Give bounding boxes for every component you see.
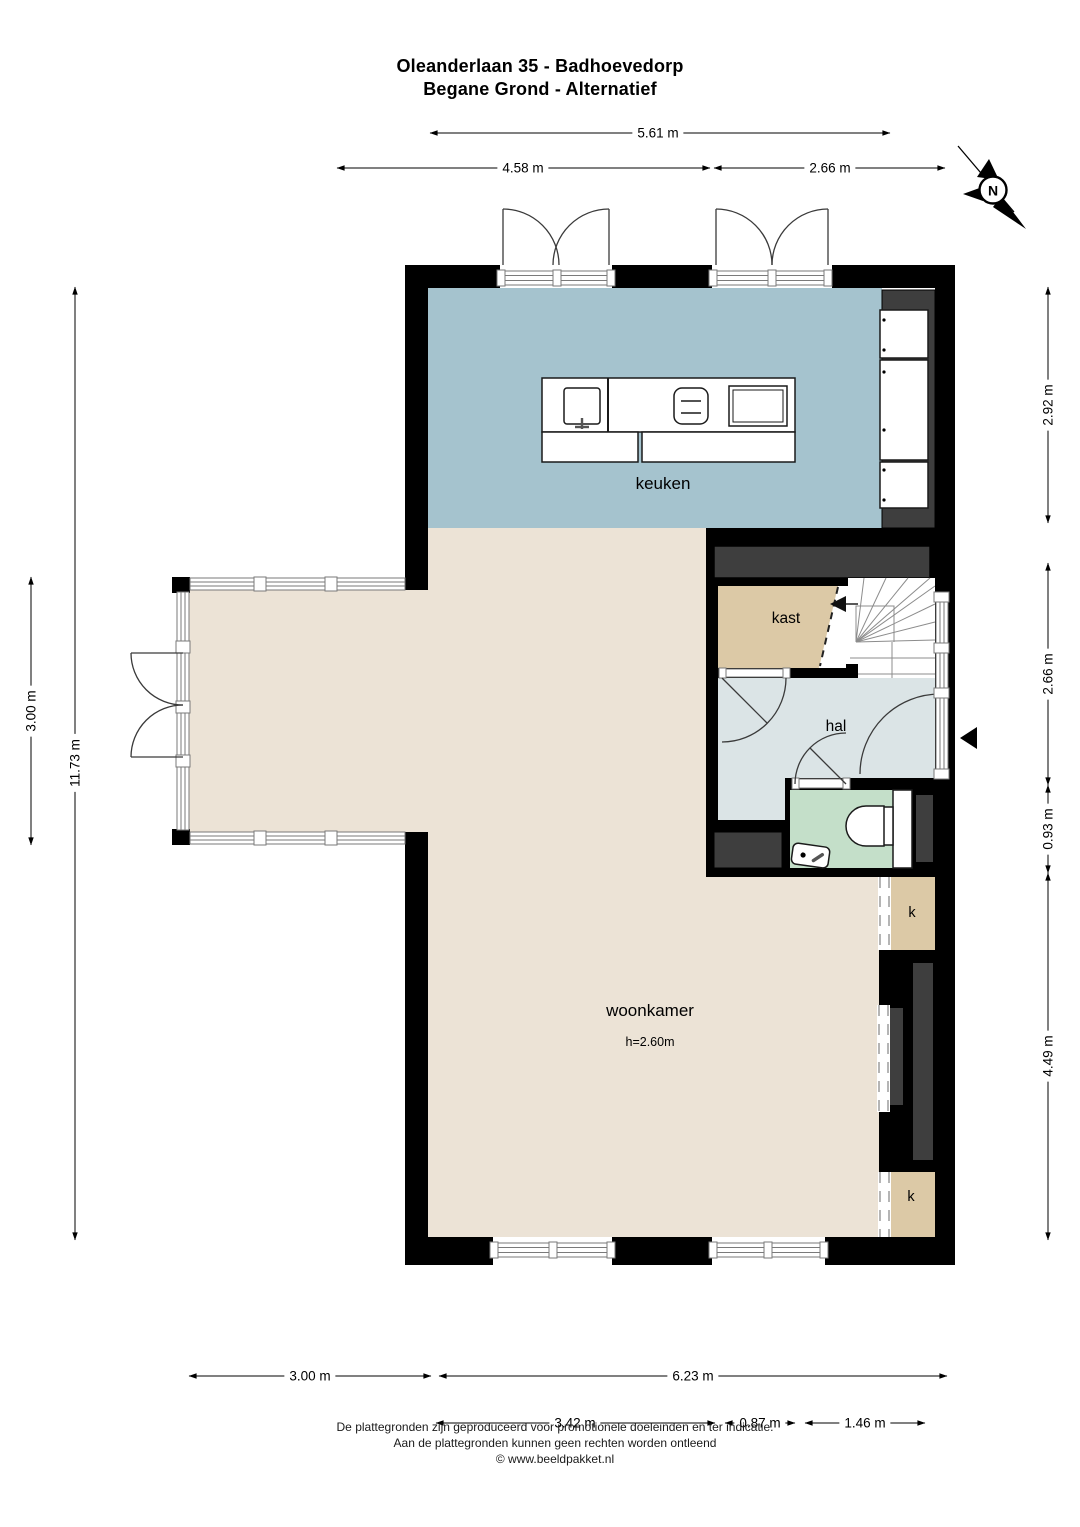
closet-label-bottom: k bbox=[907, 1189, 914, 1205]
duct-wall bbox=[714, 546, 930, 578]
sink bbox=[564, 388, 600, 429]
dim-top-right: 2.66 m bbox=[804, 161, 855, 176]
dim-left-bay: 3.00 m bbox=[24, 685, 39, 736]
kast-door-threshold bbox=[722, 669, 786, 677]
bay-extension-floor bbox=[189, 590, 428, 833]
bay-door-swings bbox=[131, 653, 183, 757]
toilet-fixture bbox=[846, 806, 893, 846]
oven-appliance bbox=[729, 386, 787, 426]
cooktop bbox=[674, 388, 708, 424]
dim-left-total: 11.73 m bbox=[68, 734, 83, 792]
entrance-arrow bbox=[960, 727, 977, 749]
dim-bottom-bay: 3.00 m bbox=[284, 1369, 335, 1384]
dim-right-keuken: 2.92 m bbox=[1041, 379, 1056, 430]
staircase bbox=[819, 578, 935, 682]
room-label-hal: hal bbox=[826, 718, 847, 736]
kitchen-island bbox=[542, 378, 795, 462]
room-label-height: h=2.60m bbox=[626, 1035, 675, 1049]
room-label-keuken: keuken bbox=[636, 474, 691, 494]
footer-disclaimer-2: Aan de plattegronden kunnen geen rechten… bbox=[15, 1436, 1080, 1450]
compass-north-label: N bbox=[988, 183, 998, 199]
bay-corner-post bbox=[172, 577, 190, 593]
dim-top-left: 4.58 m bbox=[497, 161, 548, 176]
room-toilet-area bbox=[785, 778, 935, 869]
wall-inset bbox=[714, 832, 782, 868]
dim-right-hal: 2.66 m bbox=[1041, 648, 1056, 699]
closet-label-top: k bbox=[908, 905, 915, 921]
toilet-door-threshold bbox=[795, 779, 846, 788]
dim-bottom-main: 6.23 m bbox=[667, 1369, 718, 1384]
hall-block bbox=[706, 528, 940, 877]
room-label-woonkamer: woonkamer bbox=[606, 1001, 694, 1021]
bay-corner-post bbox=[172, 829, 190, 845]
floorplan-page: N Oleanderlaan 35 - Badhoevedorp Begane … bbox=[0, 0, 1080, 1527]
kitchen-cabinet-column bbox=[880, 310, 928, 508]
terrace-door-swings bbox=[503, 209, 828, 265]
floorplan-drawing: N bbox=[0, 0, 1080, 1527]
compass-rose: N bbox=[958, 146, 1026, 229]
fontein-sink bbox=[791, 843, 831, 869]
dim-right-toilet: 0.93 m bbox=[1041, 803, 1056, 854]
right-closet-column bbox=[877, 877, 935, 1237]
footer-copyright: © www.beeldpakket.nl bbox=[15, 1452, 1080, 1466]
dim-right-woonkamer: 4.49 m bbox=[1041, 1030, 1056, 1081]
dim-top-total: 5.61 m bbox=[632, 126, 683, 141]
plan-subtitle: Begane Grond - Alternatief bbox=[0, 79, 1080, 100]
plan-title: Oleanderlaan 35 - Badhoevedorp bbox=[0, 56, 1080, 77]
room-label-kast: kast bbox=[772, 610, 800, 628]
footer-disclaimer-1: De plattegronden zijn geproduceerd voor … bbox=[15, 1420, 1080, 1434]
